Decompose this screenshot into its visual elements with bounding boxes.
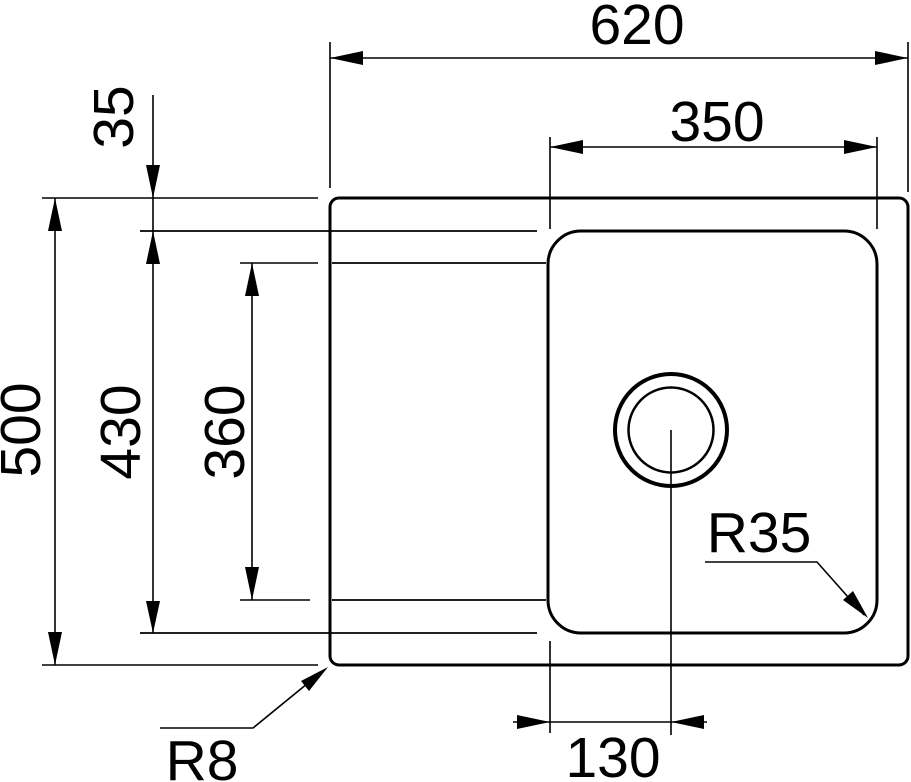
arrowhead-down-to-top-edge <box>146 165 160 198</box>
arrowhead-right <box>844 140 877 154</box>
dimension-label-35: 35 <box>82 85 146 148</box>
dimension-label-500: 500 <box>0 382 53 477</box>
dimension-rim-offset-and-inner-depth: 35 430 <box>82 85 160 633</box>
dimension-drain-offset: 130 <box>513 430 707 782</box>
dimension-drainboard-depth: 360 <box>193 263 318 600</box>
callout-bowl-corner-radius: R35 <box>705 501 868 618</box>
callout-outer-corner-radius: R8 <box>160 667 328 782</box>
dimension-overall-depth: 500 <box>0 198 318 665</box>
arrowhead-right <box>875 51 908 65</box>
arrowhead-bottom <box>245 567 259 600</box>
arrowhead-left <box>550 140 583 154</box>
dimension-bowl-width: 350 <box>550 90 877 229</box>
arrowhead-top <box>48 198 62 231</box>
leader-arrowhead <box>301 667 328 691</box>
dimension-label-130: 130 <box>565 726 660 782</box>
sink-dimension-drawing: 620 350 500 35 430 360 <box>0 0 911 782</box>
arrowhead-left <box>330 51 363 65</box>
dimension-label-620: 620 <box>589 0 684 57</box>
leader-line <box>705 562 864 615</box>
sink-outer-outline <box>330 198 908 665</box>
dimension-label-430: 430 <box>89 384 153 479</box>
arrowhead-bottom <box>48 632 62 665</box>
dimension-label-360: 360 <box>193 384 257 479</box>
arrowhead-bottom <box>146 601 160 633</box>
technical-drawing-page: 620 350 500 35 430 360 <box>0 0 911 782</box>
arrowhead-right-outside <box>671 715 704 729</box>
radius-label-r35: R35 <box>707 501 812 565</box>
arrowhead-top <box>245 263 259 296</box>
arrowhead-up-to-rim-line <box>146 231 160 264</box>
dimension-label-350: 350 <box>669 90 764 154</box>
radius-label-r8: R8 <box>166 729 239 782</box>
arrowhead-left-outside <box>517 715 550 729</box>
leader-line <box>160 670 324 728</box>
dimension-overall-width: 620 <box>330 0 908 192</box>
